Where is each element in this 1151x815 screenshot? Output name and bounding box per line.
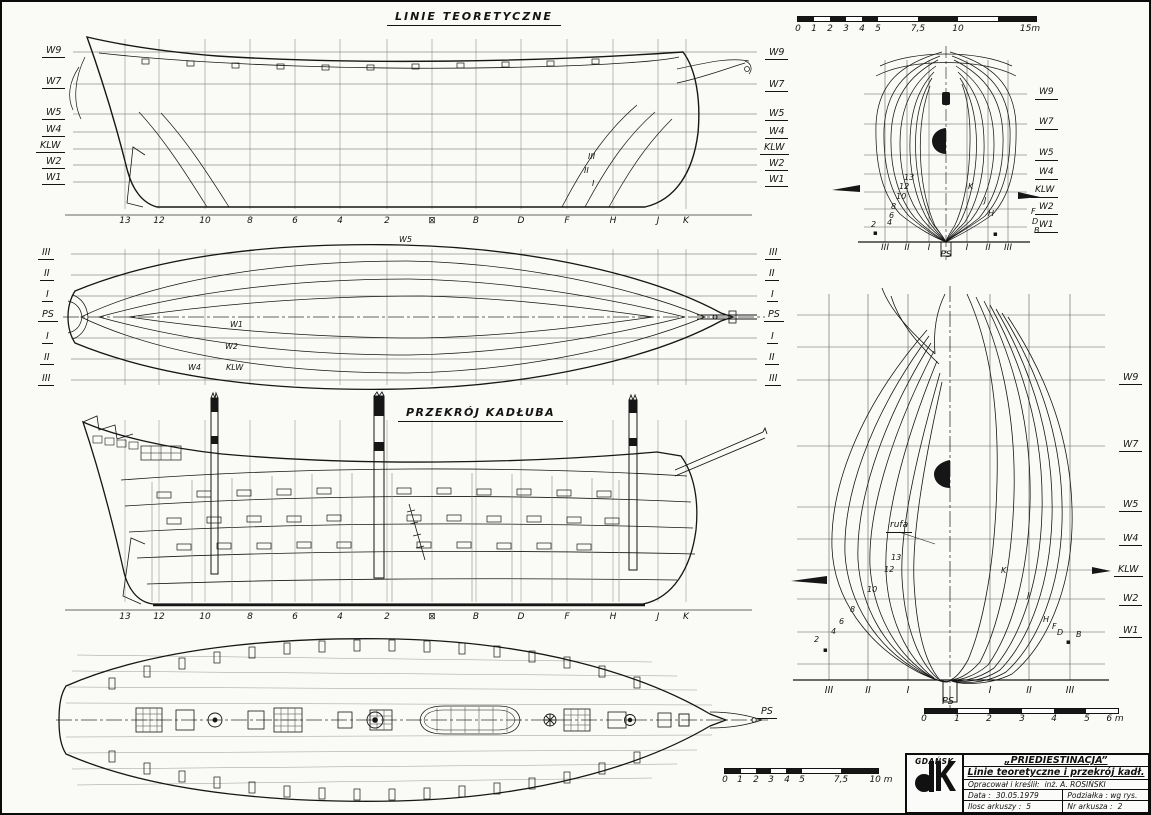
station-label: B bbox=[473, 613, 479, 623]
frame-label: II bbox=[765, 269, 779, 281]
frame-label: III bbox=[38, 248, 54, 260]
waterline-label: W7 bbox=[765, 80, 788, 92]
waterline-label: W9 bbox=[1035, 88, 1058, 100]
halfbreadth-plan-drawing bbox=[57, 237, 767, 397]
scale-tick-label: 5 bbox=[1084, 715, 1090, 725]
frame-label: I bbox=[907, 686, 910, 696]
date-cell: Data : 30.05.1979 bbox=[964, 790, 1063, 800]
frame-label: III bbox=[1066, 686, 1074, 696]
waterline-label: W5 bbox=[765, 109, 788, 121]
section-letter: K bbox=[968, 183, 973, 192]
waterline-label: W2 bbox=[1035, 203, 1058, 215]
scale-tick-label: 7,5 bbox=[834, 776, 848, 786]
section-number: 4 bbox=[887, 219, 892, 228]
waterline-label: W2 bbox=[225, 343, 238, 352]
station-label: J bbox=[657, 217, 660, 227]
frame-label: I bbox=[989, 686, 992, 696]
scale-tick-label: 5 bbox=[875, 25, 881, 35]
waterline-label: KLW bbox=[1031, 186, 1058, 198]
scale-segment bbox=[756, 769, 772, 773]
waterline-label: W1 bbox=[765, 175, 788, 187]
scale-tick-label: 3 bbox=[768, 776, 774, 786]
frame-label: II bbox=[40, 269, 54, 281]
scale-segment bbox=[1054, 709, 1087, 713]
waterline-label: W2 bbox=[1119, 594, 1142, 606]
scale-segment bbox=[958, 709, 990, 713]
frame-label: I bbox=[928, 244, 931, 254]
scale-cell: Podziałka : wg rys. bbox=[1063, 790, 1148, 800]
shipyard-logo-cell: GDAŃSK bbox=[907, 755, 964, 812]
centerline-label: PS bbox=[757, 707, 777, 719]
scale-tick-label: 5 bbox=[799, 776, 805, 786]
scale-segment bbox=[841, 769, 879, 773]
waterline-label: W9 bbox=[765, 48, 788, 60]
section-number: 4 bbox=[831, 628, 836, 637]
station-label: F bbox=[564, 217, 569, 227]
scale-tick-label: 2 bbox=[753, 776, 759, 786]
blueprint-sheet: LINIE TEORETYCZNE W9 W7 W5 W4 KLW W2 W1 … bbox=[0, 0, 1151, 815]
sheets-label: Ilosc arkuszy : bbox=[968, 802, 1021, 811]
scale-tick-label: 10 m bbox=[869, 776, 892, 786]
frame-label: II bbox=[40, 353, 54, 365]
rufa-label: rufa bbox=[886, 521, 912, 533]
scale-segment bbox=[989, 709, 1022, 713]
hull-section-drawing bbox=[57, 392, 767, 620]
scale-segment bbox=[958, 17, 998, 21]
frame-label: II bbox=[904, 244, 909, 254]
waterline-label: W4 bbox=[1119, 534, 1142, 546]
scale-segment bbox=[725, 769, 741, 773]
scale-tick-label: 0 bbox=[795, 25, 801, 35]
scale-segment bbox=[846, 17, 862, 21]
scale-segment bbox=[1022, 709, 1054, 713]
scale-tick-label: 2 bbox=[986, 715, 992, 725]
section-letter: H bbox=[988, 210, 994, 219]
waterline-label: W7 bbox=[1035, 118, 1058, 130]
station-label: 6 bbox=[292, 217, 298, 227]
frame-label: I bbox=[42, 332, 53, 344]
section-letter: J bbox=[1027, 592, 1029, 601]
scale-label: Podziałka : wg rys. bbox=[1067, 791, 1137, 800]
station-label: 13 bbox=[119, 217, 130, 227]
body-plan-small-drawing bbox=[822, 42, 1042, 262]
scale-tick-label: 1 bbox=[737, 776, 743, 786]
frame-label: III bbox=[38, 374, 54, 386]
title-block: GDAŃSK „PRIEDIESTINACJA” Linie teoretycz… bbox=[905, 753, 1150, 814]
buttock-label: I bbox=[592, 180, 594, 189]
scale-segment bbox=[798, 17, 814, 21]
section-number: 2 bbox=[814, 636, 819, 645]
scale-segment bbox=[878, 17, 918, 21]
frame-label: I bbox=[42, 290, 53, 302]
scale-segment bbox=[862, 17, 878, 21]
body-plan-large-drawing bbox=[787, 282, 1132, 714]
waterline-label: W7 bbox=[1119, 440, 1142, 452]
midship-station-mark: ⊠ bbox=[428, 217, 436, 227]
scale-tick-label: 0 bbox=[722, 776, 728, 786]
station-label: B bbox=[473, 217, 479, 227]
centerline-label: PS bbox=[38, 310, 58, 322]
centerline-label: PS bbox=[942, 697, 954, 707]
hull-section-title: PRZEKRÓJ KADŁUBA bbox=[398, 407, 563, 422]
section-letter: H bbox=[1043, 616, 1049, 625]
section-letter: D bbox=[1057, 629, 1063, 638]
station-label: 2 bbox=[384, 613, 390, 623]
title-block-rows: „PRIEDIESTINACJA” Linie teoretyczne i pr… bbox=[964, 755, 1148, 812]
waterline-label: KLW bbox=[36, 141, 65, 153]
midship-mark: ▪ bbox=[873, 230, 878, 238]
scale-tick-label: 1 bbox=[954, 715, 960, 725]
scale-tick-label: 4 bbox=[784, 776, 790, 786]
waterline-label: W4 bbox=[188, 364, 201, 373]
frame-label: II bbox=[765, 353, 779, 365]
waterline-label: W5 bbox=[399, 236, 412, 245]
station-label: J bbox=[657, 613, 660, 623]
station-label: H bbox=[610, 217, 617, 227]
waterline-label: W4 bbox=[42, 125, 65, 137]
scale-tick-label: 4 bbox=[859, 25, 865, 35]
scale-segment bbox=[998, 17, 1036, 21]
midship-mark: ▪ bbox=[993, 231, 998, 239]
frame-label: II bbox=[1026, 686, 1032, 696]
date-label: Data : bbox=[968, 791, 991, 800]
station-label: 2 bbox=[384, 217, 390, 227]
station-label: F bbox=[564, 613, 569, 623]
scale-segment bbox=[786, 769, 802, 773]
waterline-label: KLW bbox=[760, 143, 789, 155]
sheets-cell: Ilosc arkuszy : 5 bbox=[964, 801, 1063, 812]
frame-label: I bbox=[767, 290, 778, 302]
station-label: 10 bbox=[199, 613, 210, 623]
section-number: 13 bbox=[891, 554, 901, 563]
scale-segment bbox=[771, 769, 786, 773]
section-number: 8 bbox=[850, 606, 855, 615]
scale-tick-label: 7,5 bbox=[911, 25, 925, 35]
scale-tick-label: 1 bbox=[811, 25, 817, 35]
sheets-row: Ilosc arkuszy : 5 Nr arkusza : 2 bbox=[964, 801, 1148, 812]
frame-label: I bbox=[966, 244, 969, 254]
centerline-label: PS bbox=[940, 251, 951, 261]
sheer-plan-title: LINIE TEORETYCZNE bbox=[387, 11, 561, 26]
station-label: H bbox=[610, 613, 617, 623]
section-number: 6 bbox=[839, 618, 844, 627]
waterline-label: W1 bbox=[1119, 626, 1142, 638]
station-label: 12 bbox=[153, 217, 164, 227]
scale-segment bbox=[830, 17, 846, 21]
date-scale-row: Data : 30.05.1979 Podziałka : wg rys. bbox=[964, 790, 1148, 801]
waterline-label: W9 bbox=[1119, 373, 1142, 385]
waterline-label: KLW bbox=[1114, 565, 1143, 577]
scale-tick-label: 2 bbox=[827, 25, 833, 35]
scale-segment bbox=[814, 17, 830, 21]
section-letter: F bbox=[1031, 208, 1036, 217]
section-letter: J bbox=[984, 197, 986, 206]
frame-label: I bbox=[767, 332, 778, 344]
date-value: 30.05.1979 bbox=[996, 791, 1039, 800]
sheet-number-cell: Nr arkusza : 2 bbox=[1063, 801, 1148, 812]
scale-tick-label: 0 bbox=[921, 715, 927, 725]
midship-mark: ▪ bbox=[823, 647, 828, 655]
scale-bar-10m bbox=[724, 768, 879, 774]
waterline-label: W1 bbox=[230, 321, 243, 330]
sheets-value: 5 bbox=[1026, 802, 1031, 811]
frame-label: II bbox=[985, 244, 990, 254]
waterline-label: W5 bbox=[1035, 149, 1058, 161]
station-label: K bbox=[683, 217, 689, 227]
scale-segment bbox=[918, 17, 958, 21]
section-letter: B bbox=[1076, 631, 1082, 640]
section-letter: K bbox=[1001, 567, 1006, 576]
section-number: 12 bbox=[884, 566, 894, 575]
section-number: 12 bbox=[899, 183, 909, 192]
frame-label: III bbox=[881, 244, 889, 254]
waterline-label: W4 bbox=[1035, 168, 1058, 180]
scale-segment bbox=[1086, 709, 1118, 713]
waterline-label: W2 bbox=[42, 157, 65, 169]
station-label: 6 bbox=[292, 613, 298, 623]
scale-segment bbox=[802, 769, 841, 773]
scale-tick-label: 3 bbox=[843, 25, 849, 35]
waterline-label: W9 bbox=[42, 46, 65, 58]
midship-mark: ▪ bbox=[1066, 639, 1071, 647]
scale-tick-label: 15m bbox=[1020, 25, 1040, 35]
waterline-label: W7 bbox=[42, 77, 65, 89]
author-value: inż. A. ROSIŃSKI bbox=[1045, 780, 1106, 789]
frame-label: III bbox=[765, 248, 781, 260]
drawing-title: Linie teoretyczne i przekrój kadł. bbox=[964, 767, 1148, 780]
frame-label: III bbox=[825, 686, 833, 696]
waterline-label: W4 bbox=[765, 127, 788, 139]
station-label: K bbox=[683, 613, 689, 623]
section-letter: F bbox=[1052, 623, 1057, 632]
ship-name: „PRIEDIESTINACJA” bbox=[964, 755, 1148, 767]
midship-station-mark: ⊠ bbox=[428, 613, 436, 623]
scale-tick-label: 3 bbox=[1019, 715, 1025, 725]
author-label: Opracował i kreślił: bbox=[968, 780, 1040, 789]
scale-tick-label: 4 bbox=[1051, 715, 1057, 725]
station-label: D bbox=[518, 613, 525, 623]
scale-tick-label: 10 bbox=[952, 25, 963, 35]
waterline-label: W1 bbox=[42, 173, 65, 185]
waterline-label: W5 bbox=[42, 108, 65, 120]
scale-bar-15m bbox=[797, 16, 1037, 22]
frame-label: II bbox=[865, 686, 871, 696]
frame-label: III bbox=[1004, 244, 1012, 254]
scale-tick-label: 6 m bbox=[1106, 715, 1123, 725]
centerline-label: PS bbox=[764, 310, 784, 322]
station-label: 12 bbox=[153, 613, 164, 623]
station-label: 10 bbox=[199, 217, 210, 227]
waterline-label: W5 bbox=[1119, 500, 1142, 512]
waterline-label: KLW bbox=[226, 364, 243, 373]
frame-label: III bbox=[765, 374, 781, 386]
station-label: 13 bbox=[119, 613, 130, 623]
station-label: 8 bbox=[247, 613, 253, 623]
station-label: D bbox=[518, 217, 525, 227]
station-label: 4 bbox=[337, 613, 343, 623]
waterline-label: W2 bbox=[765, 159, 788, 171]
author-row: Opracował i kreślił: inż. A. ROSIŃSKI bbox=[964, 780, 1148, 791]
scale-segment bbox=[741, 769, 756, 773]
section-letter: B bbox=[1034, 227, 1040, 236]
buttock-label: II bbox=[584, 167, 589, 176]
station-label: 8 bbox=[247, 217, 253, 227]
section-number: 10 bbox=[867, 586, 877, 595]
sheet-number-value: 2 bbox=[1118, 802, 1123, 811]
sheer-plan-drawing bbox=[57, 7, 767, 222]
scale-segment bbox=[925, 709, 958, 713]
station-label: 4 bbox=[337, 217, 343, 227]
deck-plan-drawing bbox=[52, 630, 772, 812]
sheet-number-label: Nr arkusza : bbox=[1067, 802, 1112, 811]
buttock-label: III bbox=[588, 153, 595, 162]
section-number: 10 bbox=[896, 193, 906, 202]
shipyard-logo-icon bbox=[912, 757, 958, 797]
